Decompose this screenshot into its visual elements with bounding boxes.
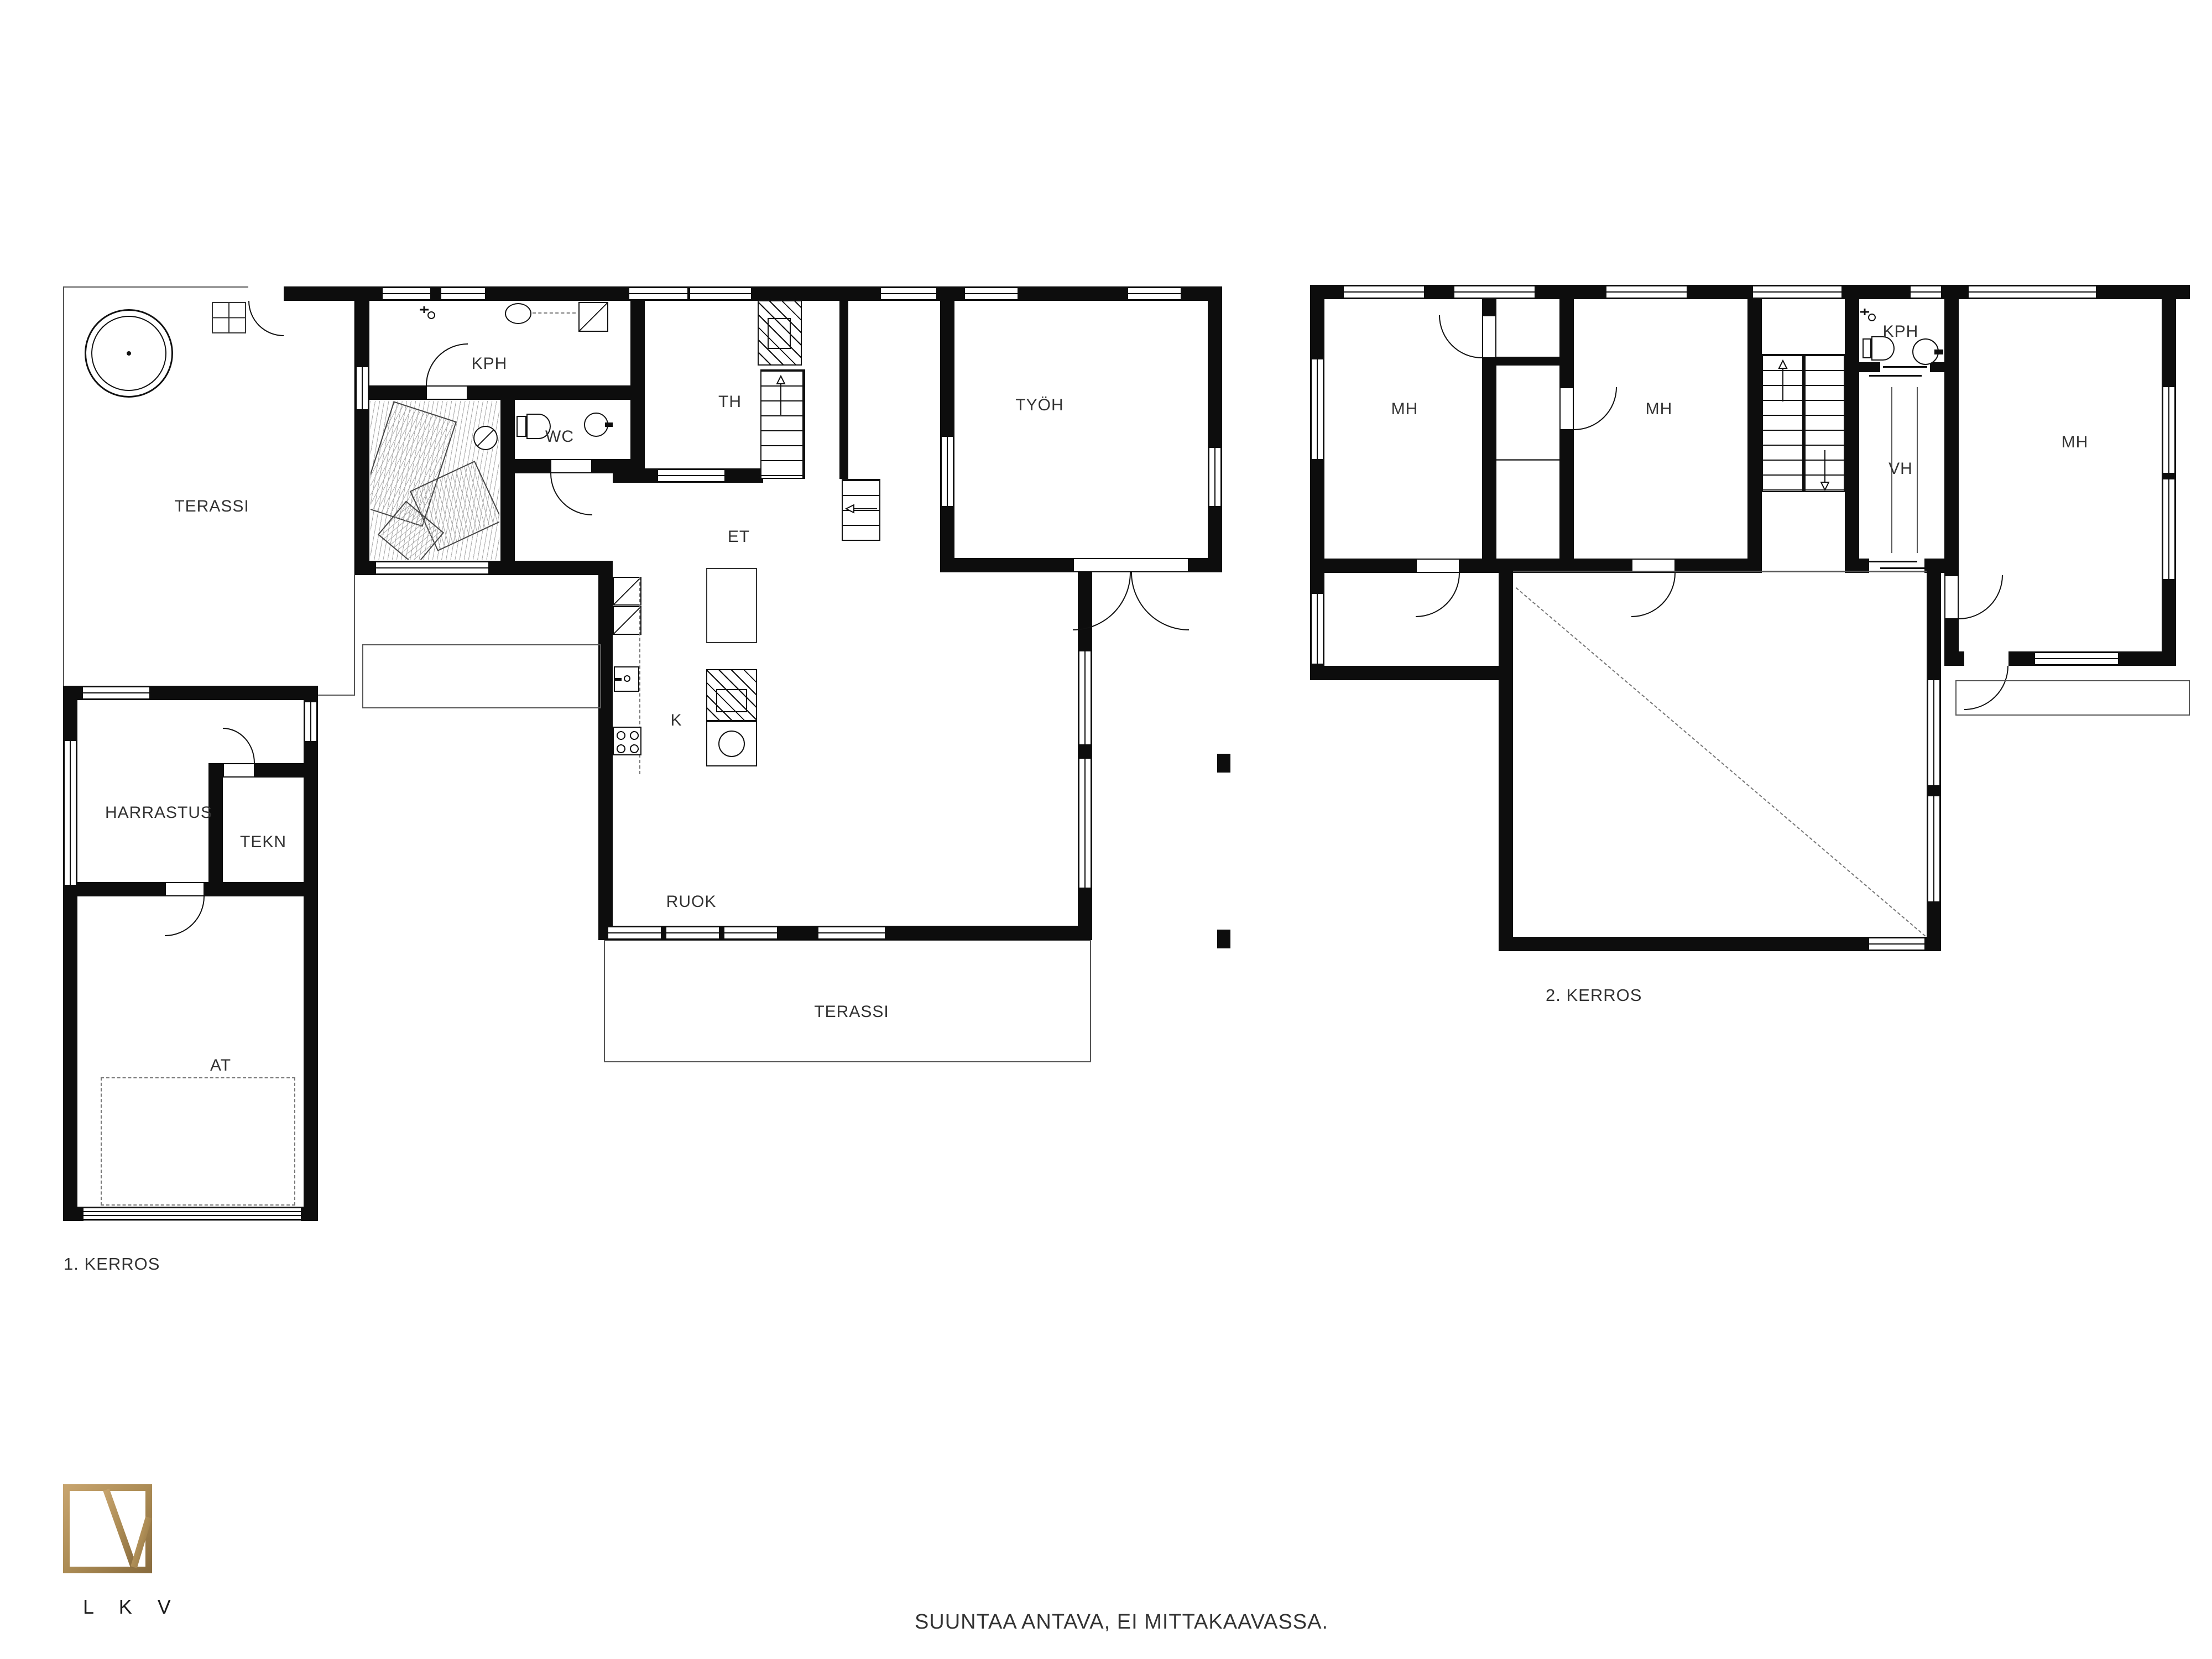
room-label-wc: WC bbox=[545, 427, 574, 446]
door-swing bbox=[1073, 572, 1131, 630]
door-opening bbox=[1964, 651, 2008, 666]
washbasin-icon bbox=[505, 303, 531, 324]
door-swing bbox=[1416, 573, 1460, 617]
cooktop-icon bbox=[613, 727, 641, 755]
pillar bbox=[1217, 930, 1230, 948]
wall bbox=[1208, 286, 1222, 572]
door-opening bbox=[426, 385, 468, 400]
door-swing bbox=[550, 473, 592, 515]
wall bbox=[355, 301, 369, 575]
sliding-door bbox=[1865, 561, 1917, 562]
window bbox=[690, 286, 751, 301]
floor-plan-canvas: TERASSI bbox=[0, 0, 2212, 1659]
room-label-vh: VH bbox=[1888, 460, 1913, 478]
door-opening bbox=[1944, 575, 1959, 619]
window bbox=[2035, 651, 2118, 666]
sliding-door bbox=[1883, 366, 1927, 368]
window bbox=[2162, 387, 2176, 473]
stairs-rail bbox=[804, 369, 805, 479]
window bbox=[965, 286, 1018, 301]
hot-tub-drain bbox=[127, 351, 131, 356]
door-opening bbox=[1482, 315, 1496, 358]
wall bbox=[1499, 572, 1513, 951]
window bbox=[1078, 759, 1092, 888]
window bbox=[383, 286, 430, 301]
wall bbox=[355, 385, 645, 400]
wardrobe-rail bbox=[1917, 387, 1918, 553]
room-label-kph2: KPH bbox=[1883, 322, 1919, 341]
wall bbox=[940, 301, 954, 558]
window bbox=[629, 286, 687, 301]
window bbox=[1310, 359, 1324, 459]
wall bbox=[630, 301, 645, 483]
patio-grid-icon bbox=[212, 302, 246, 333]
wall bbox=[598, 575, 613, 940]
door-swing bbox=[1131, 572, 1189, 630]
window bbox=[724, 926, 777, 940]
sauna-stove-icon bbox=[473, 426, 498, 450]
window bbox=[658, 468, 724, 483]
window bbox=[1078, 651, 1092, 744]
window bbox=[1753, 285, 1841, 299]
window bbox=[1454, 285, 1535, 299]
window bbox=[666, 926, 719, 940]
window bbox=[1208, 448, 1222, 506]
stairs-left-arrow-icon bbox=[844, 502, 879, 515]
room-label-ruok: RUOK bbox=[666, 893, 717, 911]
room-label-th: TH bbox=[718, 393, 742, 411]
window bbox=[1128, 286, 1181, 301]
door-swing bbox=[426, 343, 468, 385]
toilet-tank bbox=[517, 416, 526, 437]
door-swing bbox=[1631, 573, 1676, 617]
door-swing bbox=[1574, 387, 1617, 430]
room-label-terassi-lower: TERASSI bbox=[814, 1003, 889, 1021]
window bbox=[940, 437, 954, 506]
disclaimer-text: SUUNTAA ANTAVA, EI MITTAKAAVASSA. bbox=[915, 1610, 1328, 1634]
room-label-at: AT bbox=[210, 1056, 231, 1075]
sink-tap bbox=[605, 422, 613, 427]
void-diagonal bbox=[1516, 587, 1926, 936]
fireplace-hearth bbox=[768, 318, 791, 349]
room-label-tyoh: TYÖH bbox=[1015, 396, 1063, 415]
window bbox=[1310, 594, 1324, 664]
wall bbox=[500, 385, 515, 575]
hall-floor-edge bbox=[1513, 571, 1927, 572]
window bbox=[1911, 285, 1941, 299]
window bbox=[2162, 479, 2176, 579]
wall bbox=[1310, 666, 1499, 680]
door-opening bbox=[223, 763, 255, 778]
room-label-harrastus: HARRASTUS bbox=[105, 804, 212, 822]
door-opening bbox=[165, 882, 205, 896]
door-opening bbox=[1559, 387, 1574, 430]
kitchen-island bbox=[706, 568, 757, 643]
walkway-outline bbox=[362, 644, 601, 708]
island-hearth-inner bbox=[716, 689, 747, 712]
window bbox=[1344, 285, 1424, 299]
sliding-door bbox=[1869, 375, 1922, 377]
stairs-up-arrow-icon bbox=[1776, 358, 1790, 403]
wall bbox=[1845, 299, 1859, 559]
window bbox=[1869, 937, 1924, 951]
freezer-icon bbox=[613, 606, 641, 635]
wall bbox=[839, 301, 848, 479]
room-label-mh-left: MH bbox=[1391, 400, 1418, 419]
shower-head-icon bbox=[418, 305, 436, 324]
shower-cabin-icon bbox=[578, 302, 608, 332]
garage-door-icon bbox=[83, 1207, 301, 1221]
lkv-frame-logo-icon bbox=[62, 1483, 153, 1574]
room-label-k: K bbox=[670, 711, 682, 730]
stairs-up-arrow-icon bbox=[774, 374, 787, 416]
terrace-lower-outline bbox=[604, 940, 1091, 1062]
room-label-terassi-upper: TERASSI bbox=[174, 497, 249, 516]
sliding-door bbox=[1880, 567, 1933, 569]
stairs-rail bbox=[1803, 354, 1804, 492]
wall bbox=[208, 763, 223, 882]
shower-head-icon bbox=[1858, 307, 1877, 326]
window bbox=[1969, 285, 2096, 299]
door-swing bbox=[165, 896, 205, 936]
window bbox=[881, 286, 936, 301]
french-door-opening bbox=[1073, 558, 1189, 572]
toilet-tank bbox=[1863, 338, 1871, 358]
island-oven-ring bbox=[718, 731, 745, 757]
room-label-kph1: KPH bbox=[472, 354, 508, 373]
room-label-tekn: TEKN bbox=[240, 833, 286, 852]
window bbox=[1606, 285, 1687, 299]
window bbox=[818, 926, 885, 940]
sink-tap bbox=[1934, 349, 1943, 354]
floor1-caption: 1. KERROS bbox=[64, 1254, 160, 1274]
kitchen-tap bbox=[615, 678, 622, 681]
room-label-mh-middle: MH bbox=[1646, 400, 1673, 419]
door-opening bbox=[1416, 559, 1460, 573]
window bbox=[376, 561, 488, 575]
stairs-down-arrow-icon bbox=[1818, 449, 1832, 492]
car-space-outline bbox=[101, 1077, 295, 1206]
window bbox=[1927, 796, 1941, 901]
window bbox=[608, 926, 661, 940]
door-opening bbox=[550, 459, 592, 473]
door-opening bbox=[248, 286, 284, 301]
room-label-mh-right: MH bbox=[2062, 433, 2089, 452]
fridge-icon bbox=[613, 577, 641, 606]
window bbox=[63, 741, 77, 885]
window bbox=[1927, 680, 1941, 785]
door-swing bbox=[223, 728, 255, 763]
balcony-outline bbox=[1955, 680, 2190, 716]
window bbox=[355, 367, 369, 409]
room-label-et: ET bbox=[728, 528, 750, 546]
pillar bbox=[1217, 754, 1230, 773]
kitchen-sink-drain bbox=[624, 675, 630, 682]
sauna-benches bbox=[371, 401, 499, 560]
counter-dashed-line bbox=[533, 312, 576, 314]
window bbox=[83, 686, 149, 700]
wall bbox=[1747, 299, 1762, 559]
floor2-caption: 2. KERROS bbox=[1546, 985, 1642, 1005]
door-swing bbox=[1439, 315, 1482, 358]
window bbox=[441, 286, 485, 301]
window bbox=[304, 702, 318, 741]
logo-text: L K V bbox=[83, 1595, 181, 1619]
door-swing bbox=[1959, 575, 2003, 619]
